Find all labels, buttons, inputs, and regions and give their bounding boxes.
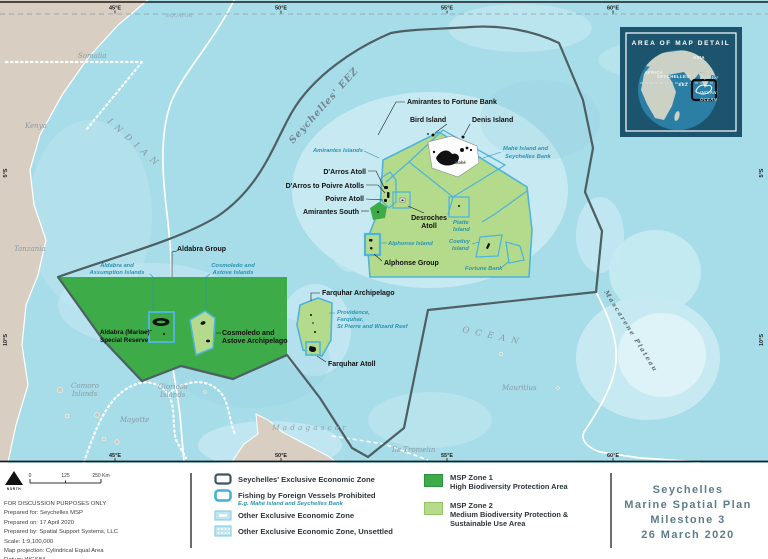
legend-label: Other Exclusive Economic Zone — [238, 511, 354, 520]
equator-label: EQUATOR — [165, 13, 193, 19]
scale-0: 0 — [29, 473, 32, 479]
tick-10s-right: 10°S — [759, 334, 765, 346]
comoro-label-1: Comoro — [71, 382, 99, 390]
tick-45e-bottom: 45°E — [109, 453, 121, 459]
tick-60e-top: 60°E — [607, 6, 619, 12]
legend-item-seychelles-eez: Seychelles' Exclusive Economic Zone — [214, 473, 393, 485]
legend-item-msp-zone2: MSP Zone 2 Medium Biodiversity Protectio… — [424, 501, 568, 528]
tick-50e-top: 50°E — [275, 6, 287, 12]
north-arrow-and-scalebar: NORTH 0 125 250 Km — [4, 468, 186, 492]
legend-label: Fishing by Foreign Vessels Prohibited — [238, 491, 376, 500]
legend-eez-column: Seychelles' Exclusive Economic Zone Fish… — [214, 473, 393, 541]
mauritius-label: Mauritius — [501, 384, 537, 392]
platte-label-1: Platte — [453, 220, 470, 226]
zone2-name: MSP Zone 2 — [450, 501, 568, 510]
fine-print-line: FOR DISCUSSION PURPOSES ONLY — [4, 500, 186, 509]
fine-print-line: Prepared by: Spatial Support Systems, LL… — [4, 528, 186, 537]
title-line-3: Milestone 3 — [612, 513, 764, 528]
cosmoledo-islands-label-1: Cosmoledo and — [211, 263, 255, 269]
aldabra-reserve-label-1: Aldabra (Marine) — [100, 329, 150, 336]
providence-label-1: Providence, — [337, 310, 370, 316]
credits-block: NORTH 0 125 250 Km FOR DISCUSSION PURPOS… — [4, 468, 186, 559]
inset-seychelles-label: SEYCHELLES' — [657, 74, 691, 79]
tromelin-label: Ile Tromelin — [391, 446, 436, 454]
aldabra-marine-special-reserve — [149, 312, 174, 342]
darros-atoll-label: D'Arros Atoll — [323, 169, 366, 176]
msp-zone2-swatch — [424, 502, 443, 515]
fine-print-line: Prepared for: Seychelles MSP — [4, 509, 186, 518]
cosmoledo-arch-label-1: Cosmoledo and — [222, 330, 275, 337]
fishing-prohibited-icon — [214, 489, 232, 502]
scale-125: 125 — [61, 473, 70, 479]
inset-title: AREA OF MAP DETAIL — [632, 40, 731, 47]
msp-zone2-farquhar — [297, 298, 332, 356]
poivre-atoll-label: Poivre Atoll — [325, 196, 364, 203]
fortune-bank-label: Fortune Bank — [465, 266, 503, 272]
legend-zones-column: MSP Zone 1 High Biodiversity Protection … — [424, 473, 568, 538]
tick-60e-bottom: 60°E — [607, 453, 619, 459]
inset-eez-label: EEZ — [678, 82, 688, 87]
fine-print-line: Scale: 1:9,100,000 — [4, 538, 186, 547]
comoro-label-2: Islands — [71, 390, 98, 398]
inset-indian-label: INDIAN — [700, 90, 717, 95]
desroches-label-1: Desroches — [411, 215, 447, 222]
title-line-4: 26 March 2020 — [612, 528, 764, 543]
map-sheet: Mahé Somalia Kenya Tanzania Madagascar C… — [0, 0, 768, 559]
inset-ocean-label: OCEAN — [700, 97, 718, 102]
legend-item-other-eez: Other Exclusive Economic Zone — [214, 510, 393, 521]
aldabra-assumption-label-1: Aldabra and — [99, 263, 134, 269]
scale-250: 250 Km — [92, 473, 109, 479]
amirantes-south-label: Amirantes South — [303, 209, 359, 216]
tick-45e-top: 45°E — [109, 6, 121, 12]
somalia-label: Somalia — [78, 52, 106, 60]
bird-island-label: Bird Island — [410, 117, 446, 124]
fine-print-line: Prepared on: 17 April 2020 — [4, 519, 186, 528]
glorioso-label-2: Islands — [159, 391, 186, 399]
zone2-description-1: Medium Biodiversity Protection & — [450, 510, 568, 519]
mahe-label: Mahé — [455, 160, 466, 165]
legend-label: Other Exclusive Economic Zone, Unsettled — [238, 527, 393, 536]
cosmoledo-islands-label-2: Astove Islands — [212, 270, 255, 276]
mahe-bank-label-2: Seychelles Bank — [505, 154, 552, 160]
other-eez-unsettled-icon — [214, 525, 232, 537]
seychelles-eez-icon — [214, 473, 232, 485]
tick-50e-bottom: 50°E — [275, 453, 287, 459]
providence-label-3: St Pierre and Wizard Reef — [337, 324, 409, 330]
tick-55e-top: 55°E — [441, 6, 453, 12]
desroches-label-2: Atoll — [421, 223, 437, 230]
darros-poivre-label: D'Arros to Poivre Atolls — [286, 183, 365, 190]
fine-print: FOR DISCUSSION PURPOSES ONLY Prepared fo… — [4, 500, 186, 559]
tanzania-label: Tanzania — [14, 245, 46, 253]
madagascar-label: Madagascar — [271, 423, 349, 432]
kenya-label: Kenya — [24, 122, 47, 130]
zone2-description-2: Sustainable Use Area — [450, 519, 568, 528]
scale-bar — [30, 479, 101, 483]
coetivy-label-2: Island — [452, 246, 469, 252]
mayotte-label: Mayotte — [119, 416, 149, 424]
inset-area-of-map-detail: AREA OF MAP DETAIL AFRICA ASIA SEYCHELLE… — [620, 27, 742, 137]
legend-eg-note: E.g. Mahé Island and Seychelles Bank — [238, 501, 393, 507]
legend-label: Seychelles' Exclusive Economic Zone — [238, 475, 375, 484]
coetivy-label-1: Coetivy — [449, 239, 471, 245]
farquhar-atoll-label: Farquhar Atoll — [328, 361, 376, 368]
alphonse-group-label: Alphonse Group — [384, 260, 439, 267]
alphonse-island-label: Alphonse Island — [387, 241, 433, 247]
farquhar-arch-label: Farquhar Archipelago — [322, 290, 394, 297]
cosmoledo-arch-label-2: Astove Archipelago — [222, 338, 287, 345]
map-canvas: Mahé Somalia Kenya Tanzania Madagascar C… — [0, 0, 768, 463]
aldabra-group-label: Aldabra Group — [177, 246, 226, 253]
amirantes-fortune-label: Amirantes to Fortune Bank — [407, 99, 497, 106]
providence-label-2: Farquhar, — [337, 317, 364, 323]
zone1-description: High Biodiversity Protection Area — [450, 482, 568, 491]
title-line-1: Seychelles — [612, 483, 764, 498]
aldabra-reserve-label-2: Special Reserve — [100, 337, 149, 344]
tick-5s-left: 5°S — [3, 168, 9, 177]
denis-island-label: Denis Island — [472, 117, 513, 124]
north-arrow-label: NORTH — [7, 487, 21, 491]
aldabra-assumption-label-2: Assumption Islands — [88, 270, 145, 276]
tick-55e-bottom: 55°E — [441, 453, 453, 459]
fine-print-line: Map projection: Cylindrical Equal Area — [4, 547, 186, 556]
msp-zone1-swatch — [424, 474, 443, 487]
map-footer-panel: NORTH 0 125 250 Km FOR DISCUSSION PURPOS… — [0, 463, 768, 559]
inset-asia-label: ASIA — [693, 55, 705, 60]
zone1-name: MSP Zone 1 — [450, 473, 568, 482]
inset-equator-label: Equator — [700, 75, 718, 80]
legend-item-msp-zone1: MSP Zone 1 High Biodiversity Protection … — [424, 473, 568, 491]
tick-10s-left: 10°S — [3, 334, 9, 346]
platte-label-2: Island — [453, 227, 470, 233]
glorioso-label-1: Glorioso — [158, 383, 188, 391]
legend-item-other-eez-unsettled: Other Exclusive Economic Zone, Unsettled — [214, 525, 393, 537]
mahe-bank-label-1: Mahé Island and — [503, 146, 549, 152]
map-title-block: Seychelles Marine Spatial Plan Milestone… — [612, 483, 764, 543]
panel-divider — [190, 473, 192, 548]
north-arrow-icon — [5, 471, 23, 485]
tick-5s-right: 5°S — [759, 168, 765, 177]
other-eez-icon — [214, 510, 232, 521]
amirantes-islands-label: Amirantes Islands — [312, 148, 364, 154]
title-line-2: Marine Spatial Plan — [612, 498, 764, 513]
